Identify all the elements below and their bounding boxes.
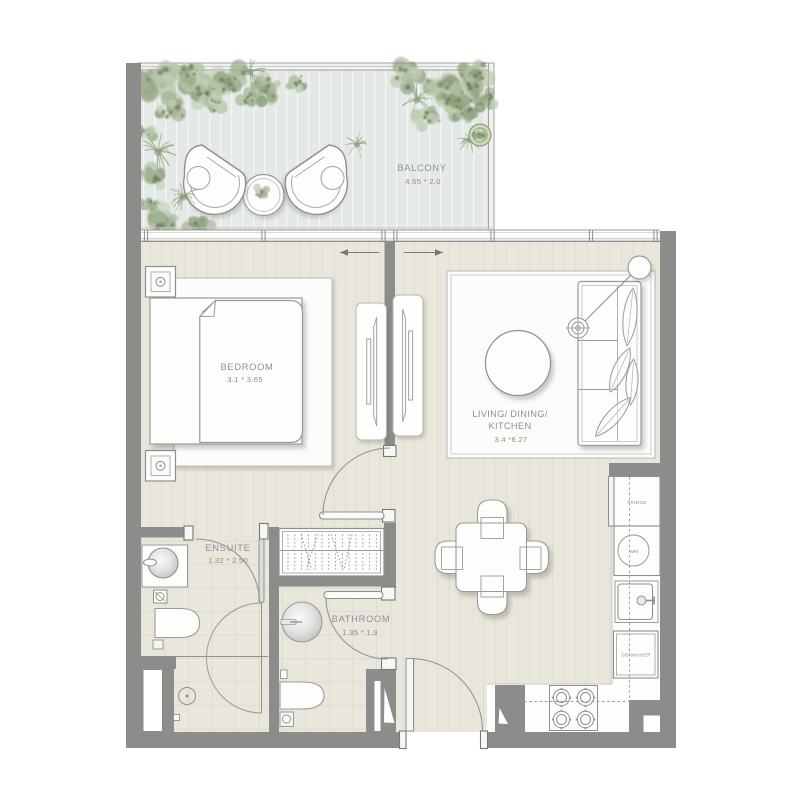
svg-text:FRIDGE: FRIDGE — [627, 500, 646, 506]
svg-text:KITCHEN: KITCHEN — [489, 421, 532, 431]
svg-text:1.32 * 2.50: 1.32 * 2.50 — [208, 556, 248, 565]
svg-text:3.4 *6.27: 3.4 *6.27 — [494, 435, 527, 444]
svg-text:BALCONY: BALCONY — [397, 163, 446, 173]
svg-text:BATHROOM: BATHROOM — [332, 614, 391, 624]
svg-text:4.55 * 2.0: 4.55 * 2.0 — [405, 177, 441, 186]
svg-text:DISHWASHER: DISHWASHER — [622, 653, 651, 658]
svg-text:LIVING/ DINING/: LIVING/ DINING/ — [472, 409, 547, 419]
svg-text:3.1 * 3.65: 3.1 * 3.65 — [227, 375, 263, 384]
svg-text:1.35 * 1.9: 1.35 * 1.9 — [342, 628, 378, 637]
svg-text:WM: WM — [630, 549, 639, 555]
svg-text:BEDROOM: BEDROOM — [221, 362, 274, 372]
